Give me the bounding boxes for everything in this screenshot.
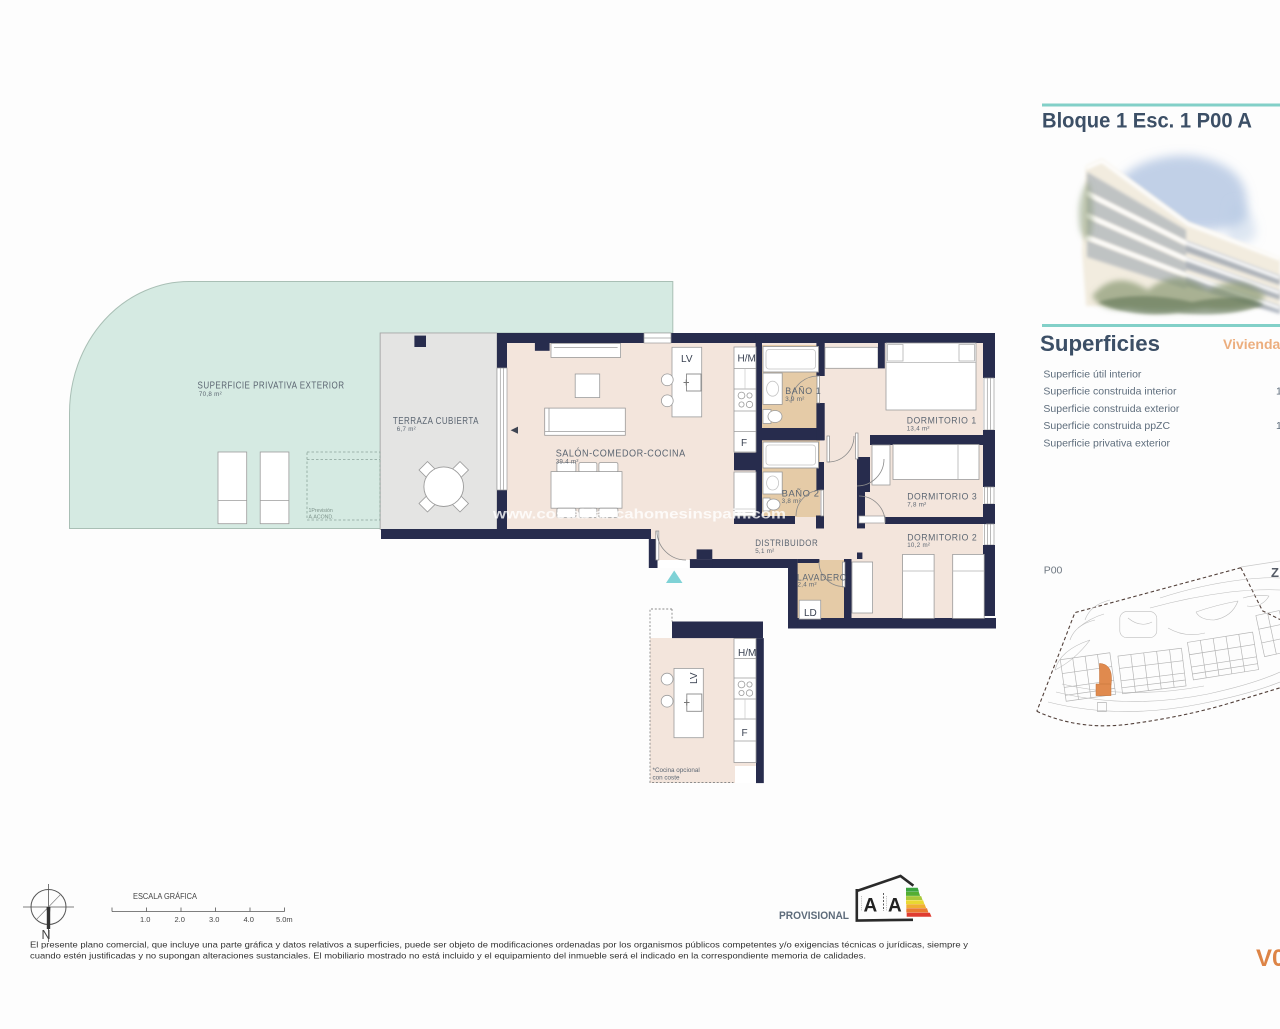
svg-text:A: A (864, 896, 878, 917)
svg-text:2,4 m²: 2,4 m² (798, 582, 817, 589)
svg-text:SUPERFICIE PRIVATIVA EXTERIOR: SUPERFICIE PRIVATIVA EXTERIOR (198, 380, 345, 392)
svg-text:11: 11 (1276, 420, 1280, 432)
svg-text:1.0: 1.0 (140, 915, 150, 924)
svg-text:con coste: con coste (653, 775, 680, 782)
svg-text:Superficie construida interior: Superficie construida interior (1043, 386, 1177, 398)
svg-text:www.costablancahomesinspain.co: www.costablancahomesinspain.com (492, 506, 786, 522)
svg-text:*Cocina opcional: *Cocina opcional (653, 767, 700, 774)
svg-text:1Previsión: 1Previsión (309, 508, 333, 514)
svg-text:7,8 m²: 7,8 m² (907, 501, 926, 508)
svg-text:13,4 m²: 13,4 m² (907, 426, 930, 433)
svg-text:PROVISIONAL: PROVISIONAL (779, 910, 849, 922)
svg-text:LD: LD (804, 608, 817, 619)
svg-text:Superficie construida exterior: Superficie construida exterior (1043, 403, 1179, 415)
svg-text:LV: LV (689, 672, 700, 684)
svg-text:F: F (741, 438, 747, 449)
svg-text:LV: LV (681, 354, 693, 365)
svg-text:P00: P00 (1044, 564, 1063, 576)
svg-text:3.0: 3.0 (209, 915, 219, 924)
svg-text:2.0: 2.0 (175, 915, 185, 924)
svg-text:Bloque 1 Esc. 1 P00 A: Bloque 1 Esc. 1 P00 A (1042, 110, 1252, 133)
svg-text:6,7 m²: 6,7 m² (397, 426, 416, 433)
svg-text:5.0m: 5.0m (276, 915, 293, 924)
svg-text:Superficies: Superficies (1040, 331, 1160, 356)
svg-text:A: A (888, 896, 902, 917)
svg-text:10: 10 (1276, 386, 1280, 398)
svg-text:F: F (742, 728, 748, 739)
svg-text:3,8 m²: 3,8 m² (782, 498, 801, 505)
svg-text:Vivienda 1: Vivienda 1 (1223, 336, 1280, 352)
svg-text:ESCALA GRÁFICA: ESCALA GRÁFICA (133, 892, 198, 901)
svg-text:A.ACOND.: A.ACOND. (309, 515, 334, 521)
svg-text:5,1 m²: 5,1 m² (755, 548, 774, 555)
svg-text:H/M: H/M (738, 354, 756, 365)
svg-text:10,2 m²: 10,2 m² (907, 542, 930, 549)
svg-text:4.0: 4.0 (244, 915, 254, 924)
svg-text:Superficie construida ppZC: Superficie construida ppZC (1043, 420, 1170, 432)
svg-text:H/M: H/M (738, 648, 756, 659)
svg-text:3,9 m²: 3,9 m² (785, 396, 804, 403)
svg-text:Superficie privativa exterior: Superficie privativa exterior (1043, 438, 1170, 450)
svg-text:70,8 m²: 70,8 m² (199, 391, 222, 398)
svg-text:El presente plano comercial, q: El presente plano comercial, que incluye… (30, 940, 969, 950)
svg-text:Superficie útil interior: Superficie útil interior (1043, 368, 1142, 380)
svg-text:39.4 m²: 39.4 m² (556, 458, 579, 465)
svg-text:V01: V01 (1256, 945, 1280, 972)
svg-text:cuando estén justificadas y no: cuando estén justificadas y no supongan … (30, 951, 866, 961)
